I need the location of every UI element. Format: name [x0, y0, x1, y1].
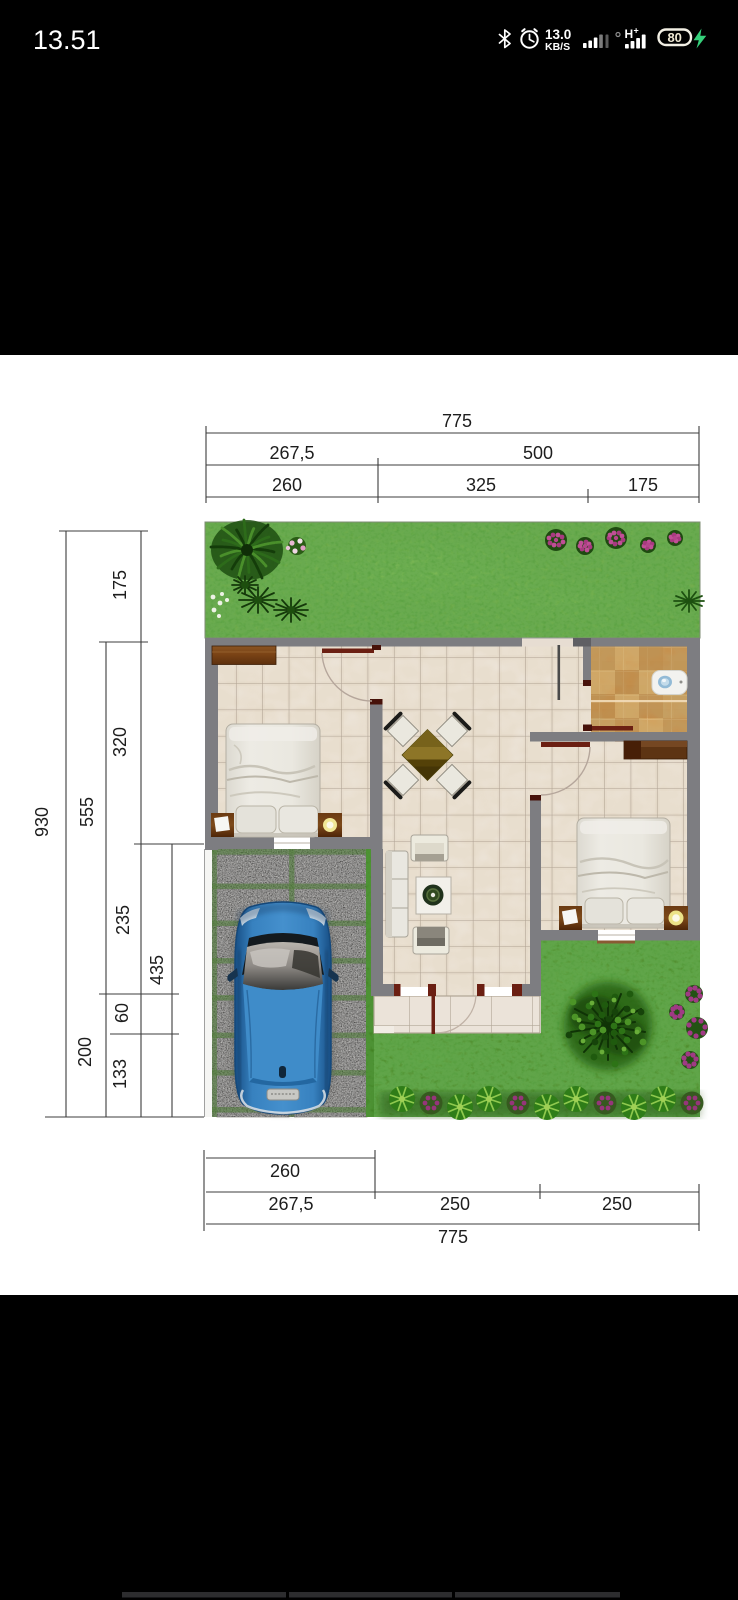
svg-text:775: 775	[438, 1227, 468, 1247]
svg-text:60: 60	[112, 1003, 132, 1023]
svg-text:250: 250	[440, 1194, 470, 1214]
svg-text:930: 930	[32, 807, 52, 837]
svg-text:13.51: 13.51	[33, 25, 101, 55]
svg-text:175: 175	[628, 475, 658, 495]
svg-text:235: 235	[113, 905, 133, 935]
svg-text:435: 435	[147, 955, 167, 985]
svg-text:320: 320	[110, 727, 130, 757]
svg-text:260: 260	[270, 1161, 300, 1181]
svg-text:267,5: 267,5	[269, 443, 314, 463]
svg-text:775: 775	[442, 411, 472, 431]
svg-text:175: 175	[110, 570, 130, 600]
svg-text:500: 500	[523, 443, 553, 463]
svg-text:80: 80	[667, 30, 681, 45]
svg-text:KB/S: KB/S	[545, 41, 570, 53]
svg-text:H: H	[625, 27, 634, 41]
svg-text:250: 250	[602, 1194, 632, 1214]
svg-text:200: 200	[75, 1037, 95, 1067]
svg-text:260: 260	[272, 475, 302, 495]
svg-text:267,5: 267,5	[268, 1194, 313, 1214]
svg-text:133: 133	[110, 1059, 130, 1089]
svg-text:555: 555	[77, 797, 97, 827]
svg-text:325: 325	[466, 475, 496, 495]
svg-text:+: +	[634, 26, 639, 36]
svg-text:13.0: 13.0	[545, 27, 571, 42]
